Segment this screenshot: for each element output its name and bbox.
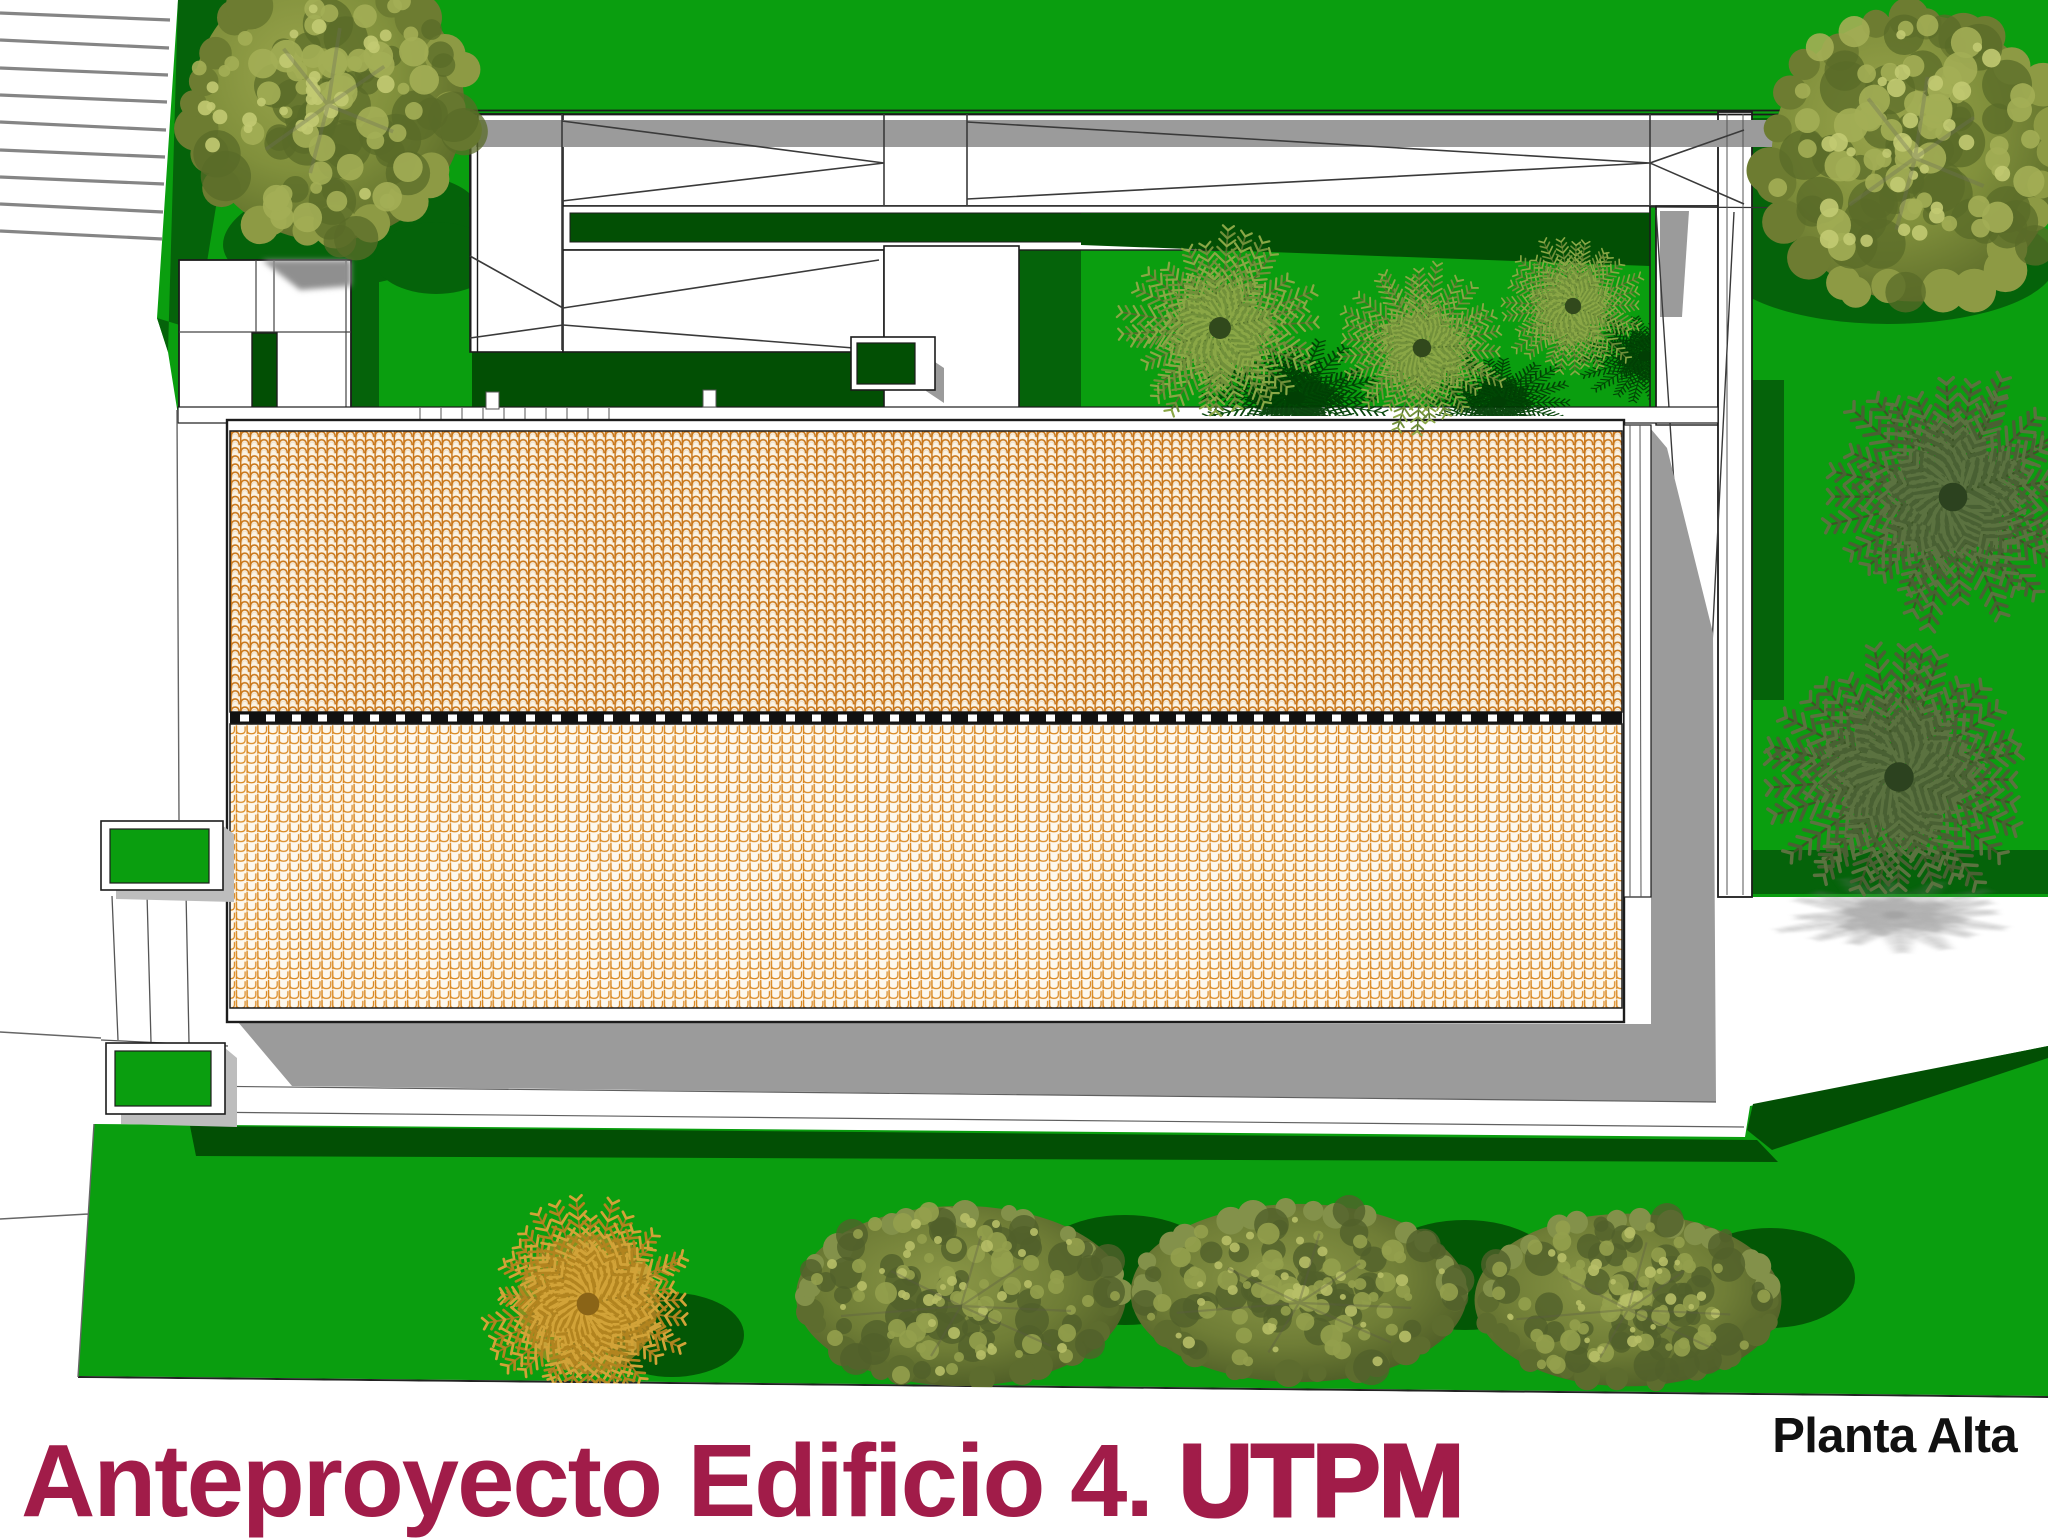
svg-text:Anteproyecto Edificio 4. UTPM: Anteproyecto Edificio 4. UTPM [21,1423,1462,1538]
svg-text:Planta Alta: Planta Alta [1772,1409,2018,1463]
